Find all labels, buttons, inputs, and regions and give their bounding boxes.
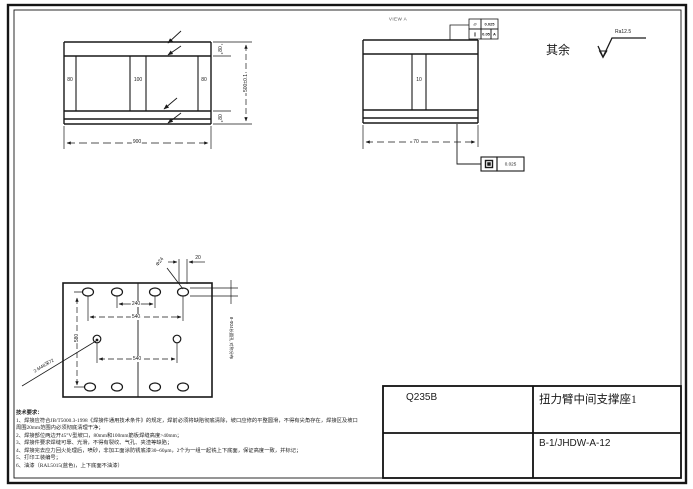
- weld-symbol-arrows: [164, 31, 181, 123]
- surface-note-text: 其余: [546, 41, 570, 58]
- part-name: 扭力臂中间支撑座1: [539, 391, 637, 407]
- fcf-top-datum: A: [493, 32, 496, 37]
- tech-req-item: 1、焊接应符合JB/T5000.3-1998《焊接件通用技术条件》的规定，焊前必…: [16, 418, 363, 433]
- flatness-symbol: [486, 161, 493, 168]
- front-flange-top-dim: 80: [218, 45, 224, 53]
- plate-slot-holes-callout: 8-Φ24长圆孔 对称分布: [228, 317, 234, 359]
- front-view-outline: [64, 42, 211, 124]
- surface-roughness-value: Ra12.5: [615, 29, 631, 35]
- plate-slot-width-dim: 20: [195, 255, 201, 261]
- tech-req-item: 6、油漆（RAL5015(蓝色)，上下底面不油漆）: [16, 463, 363, 471]
- plate-leader-lines: [22, 268, 183, 386]
- engineering-drawing-sheet: 80 100 80 900 80 500±0.1 80 VIEW A 10 70…: [0, 0, 693, 489]
- plate-pitch-inner-dim: 240: [131, 301, 141, 307]
- view-a-web-dim: 10: [415, 77, 423, 83]
- front-height-dim: 500±0.1: [243, 73, 249, 93]
- front-web-left-dim: 80: [66, 77, 74, 83]
- tech-req-item: 2、焊接部位两边开45°V型坡口，80mm和100mm筋板焊缝高度>40mm；: [16, 433, 363, 441]
- technical-requirements: 技术要求： 1、焊接应符合JB/T5000.3-1998《焊接件通用技术条件》的…: [16, 410, 363, 470]
- fcf-top-symbol-1: ⏥: [473, 22, 476, 27]
- drawing-number: B-1/JHDW-A-12: [539, 438, 611, 449]
- plate-pitch-outer-dim: 540: [131, 314, 141, 320]
- tech-req-item: 4、焊接完去应力回火处理后，喷砂，非加工面涂防锈底漆30~60μm，2个为一组一…: [16, 448, 363, 456]
- fcf-bottom-value: 0.025: [505, 162, 517, 167]
- tech-req-item: 3、焊接件要求焊缝可靠、光滑，不得有裂纹、气孔、夹渣等缺陷；: [16, 440, 363, 448]
- front-web-right-dim: 80: [200, 77, 208, 83]
- fcf-top-value-2: 0.05: [482, 32, 490, 37]
- tech-req-title: 技术要求：: [16, 410, 363, 418]
- view-a-dimension-lines: [363, 125, 478, 149]
- plate-height-dim: 580: [74, 333, 80, 343]
- surface-roughness-icon: [598, 38, 646, 58]
- fcf-top-value-1: 0.025: [484, 22, 494, 27]
- front-width-dim: 900: [132, 139, 142, 145]
- tech-req-item: 5、打印工装编号；: [16, 455, 363, 463]
- front-flange-bottom-dim: 80: [218, 113, 224, 121]
- plate-dimension-lines: [74, 259, 238, 387]
- fcf-top-symbol-2: ∥: [474, 32, 476, 37]
- front-view-dimension-lines: [64, 42, 252, 149]
- front-web-center-dim: 100: [133, 77, 143, 83]
- view-a-title: VIEW A: [389, 17, 407, 22]
- plate-pitch-mid-dim: 540: [132, 356, 142, 362]
- view-a-width-dim: 70: [412, 139, 420, 145]
- material-grade: Q235B: [406, 392, 437, 403]
